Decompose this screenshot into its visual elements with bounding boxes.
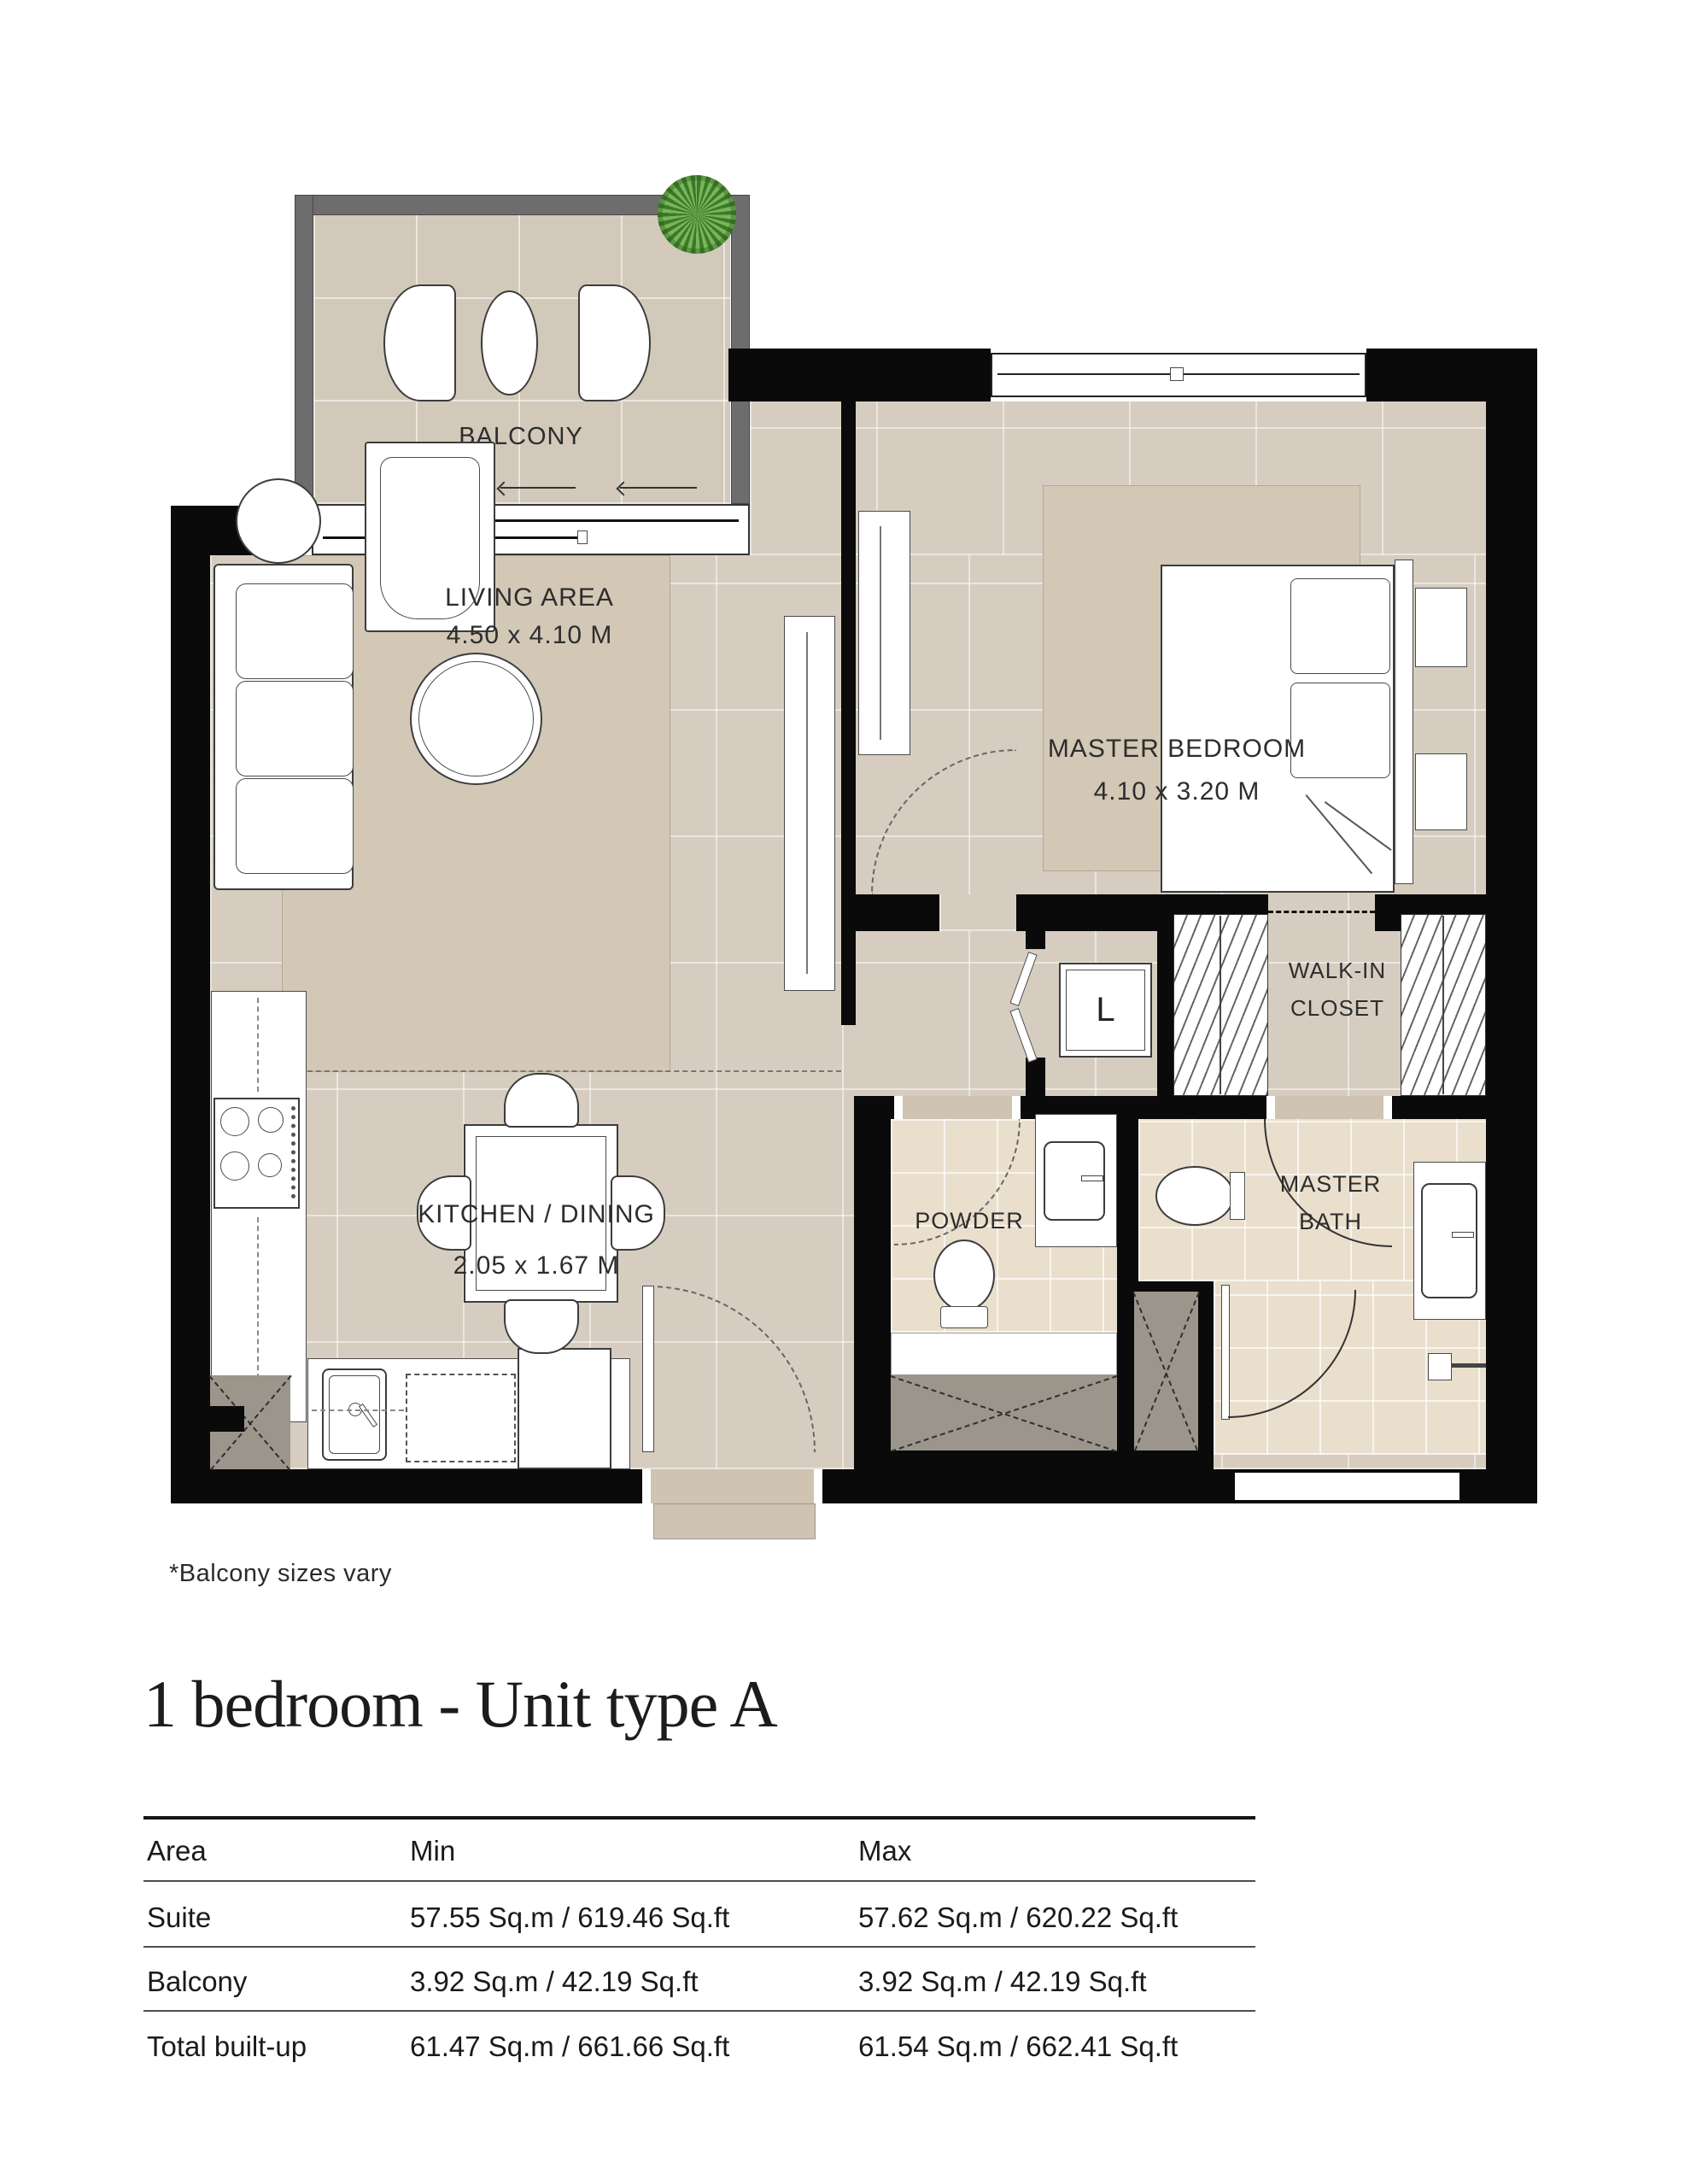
- powder-door-sill: [903, 1096, 1012, 1119]
- balcony-footnote: *Balcony sizes vary: [169, 1560, 392, 1588]
- toilet-bowl: [933, 1239, 995, 1311]
- walkin-line2: CLOSET: [1269, 989, 1406, 1027]
- coffee-table-inner: [418, 661, 534, 776]
- faucet-icon: [1081, 1175, 1103, 1181]
- row-max: 57.62 Sq.m / 620.22 Sq.ft: [858, 1902, 1178, 1934]
- bath-line2: BATH: [1245, 1203, 1416, 1240]
- walkin-opening-dashed: [1268, 911, 1375, 913]
- row-min: 57.55 Sq.m / 619.46 Sq.ft: [410, 1902, 729, 1934]
- faucet-icon: [1452, 1232, 1474, 1238]
- table-row-balcony: Balcony 3.92 Sq.m / 42.19 Sq.ft 3.92 Sq.…: [143, 1966, 1255, 2000]
- bottom-wall-notch: [1235, 1473, 1459, 1500]
- walkin-line1: WALK-IN: [1269, 952, 1406, 989]
- laundry-label: L: [1066, 970, 1145, 1051]
- balcony-wall-left: [295, 195, 313, 504]
- bath-toilet-bowl: [1155, 1166, 1234, 1226]
- col-header-max: Max: [858, 1835, 911, 1867]
- table-rule: [143, 1946, 1255, 1948]
- table-rule: [143, 1880, 1255, 1882]
- door-jamb: [1383, 1096, 1392, 1119]
- row-area: Balcony: [147, 1966, 247, 1998]
- row-min: 61.47 Sq.m / 661.66 Sq.ft: [410, 2031, 729, 2063]
- plant-icon: [658, 175, 736, 254]
- washer: [518, 1348, 611, 1469]
- pillow: [1290, 578, 1390, 674]
- table-row-suite: Suite 57.55 Sq.m / 619.46 Sq.ft 57.62 Sq…: [143, 1902, 1255, 1936]
- wall-under-powder: [891, 1450, 1117, 1469]
- nightstand: [1415, 753, 1467, 830]
- wall-left: [171, 506, 210, 1503]
- kitchen-dining-name: KITCHEN / DINING: [323, 1189, 750, 1240]
- bedroom-mirror-panel: [858, 511, 910, 755]
- row-min: 3.92 Sq.m / 42.19 Sq.ft: [410, 1966, 699, 1998]
- col-header-min: Min: [410, 1835, 455, 1867]
- burner-icon: [220, 1107, 249, 1136]
- living-dashed-line: [282, 1070, 841, 1072]
- bedroom-window-mullion: [1170, 367, 1184, 381]
- sofa-cushion: [236, 778, 354, 874]
- nightstand: [1415, 588, 1467, 667]
- master-bedroom-name: MASTER BEDROOM: [980, 728, 1373, 771]
- area-table: Area Min Max Suite 57.55 Sq.m / 619.46 S…: [143, 1816, 1255, 2081]
- headboard: [1395, 560, 1413, 884]
- table-header-row: Area Min Max: [143, 1835, 1255, 1869]
- table-rule: [143, 2010, 1255, 2012]
- row-area: Total built-up: [147, 2031, 307, 2063]
- master-bath-label: MASTER BATH: [1245, 1165, 1416, 1240]
- unit-title: 1 bedroom - Unit type A: [143, 1666, 777, 1743]
- row-area: Suite: [147, 1902, 211, 1934]
- kitchen-dining-dims: 2.05 x 1.67 M: [323, 1240, 750, 1292]
- burner-icon: [220, 1152, 249, 1181]
- wall-closet-divider: [1157, 914, 1173, 1098]
- wall-kitchen-powder: [854, 1096, 891, 1469]
- shaft-wall-notch: [210, 1406, 244, 1432]
- stove-knobs: [291, 1106, 295, 1198]
- wall-bedroom-top-left: [728, 349, 991, 401]
- master-bedroom-dims: 4.10 x 3.20 M: [980, 771, 1373, 813]
- slider-rail-1: [478, 519, 739, 522]
- entry-step: [653, 1503, 816, 1539]
- bedroom-door-opening: [939, 894, 1016, 931]
- dining-chair-top: [504, 1073, 579, 1128]
- row-max: 3.92 Sq.m / 42.19 Sq.ft: [858, 1966, 1147, 1998]
- living-area-label: LIVING AREA 4.50 x 4.10 M: [316, 579, 743, 654]
- door-jamb: [1266, 1096, 1275, 1119]
- dishwasher-dashed: [406, 1374, 516, 1462]
- powder-threshold: [891, 1333, 1117, 1375]
- balcony-arrow-left-icon: [500, 487, 576, 489]
- col-header-area: Area: [147, 1835, 207, 1867]
- walk-in-closet-label: WALK-IN CLOSET: [1269, 952, 1406, 1027]
- table-rule: [143, 1816, 1255, 1820]
- bath-door-sill: [1275, 1096, 1383, 1119]
- counter-dashed-line: [312, 1409, 404, 1411]
- side-table: [236, 478, 321, 564]
- balcony-arrow-left-icon-2: [620, 487, 697, 489]
- burner-icon: [258, 1107, 284, 1133]
- balcony-table: [481, 290, 538, 396]
- balcony-chair-left: [383, 284, 456, 401]
- living-area-name: LIVING AREA: [316, 579, 743, 617]
- burner-icon: [258, 1153, 282, 1177]
- page: { "floorplan": { "balcony": {"name": "BA…: [0, 0, 1708, 2180]
- bath-line1: MASTER: [1245, 1165, 1416, 1203]
- wardrobe-mullion: [1220, 916, 1221, 1094]
- kitchen-dining-label: KITCHEN / DINING 2.05 x 1.67 M: [323, 1189, 750, 1292]
- wardrobe-mullion: [1442, 916, 1444, 1094]
- wall-bedroom-bottom-a: [856, 894, 939, 931]
- wall-laundry-stub-top: [1026, 914, 1045, 949]
- living-area-dims: 4.50 x 4.10 M: [316, 617, 743, 654]
- row-max: 61.54 Sq.m / 662.41 Sq.ft: [858, 2031, 1178, 2063]
- slider-handle-2: [577, 530, 588, 544]
- entry-door-leaf: [642, 1286, 654, 1452]
- master-bedroom-label: MASTER BEDROOM 4.10 x 3.20 M: [980, 728, 1373, 813]
- bedroom-mirror-line: [880, 526, 881, 740]
- powder-label: POWDER: [884, 1208, 1055, 1234]
- entry-door-sill: [649, 1469, 816, 1503]
- bath-sink: [1421, 1183, 1477, 1298]
- wall-laundry-stub-bottom: [1026, 1058, 1045, 1098]
- living-mirror-line: [806, 632, 808, 974]
- door-jamb: [894, 1096, 903, 1119]
- wall-divider: [841, 401, 856, 1025]
- counter-dashed-line: [257, 998, 259, 1092]
- shower-head-icon: [1428, 1353, 1452, 1380]
- bath-toilet-tank: [1230, 1172, 1245, 1220]
- sofa-cushion: [236, 681, 354, 776]
- door-jamb: [642, 1469, 651, 1503]
- toilet-base: [940, 1306, 988, 1328]
- table-row-total: Total built-up 61.47 Sq.m / 661.66 Sq.ft…: [143, 2031, 1255, 2065]
- balcony-chair-right: [578, 284, 651, 401]
- floor-plan: BALCONY: [171, 154, 1537, 1512]
- living-mirror-panel: [784, 616, 835, 991]
- wall-right: [1486, 349, 1537, 1503]
- shower-head-bar: [1452, 1363, 1486, 1368]
- door-jamb: [814, 1469, 822, 1503]
- door-jamb: [1012, 1096, 1021, 1119]
